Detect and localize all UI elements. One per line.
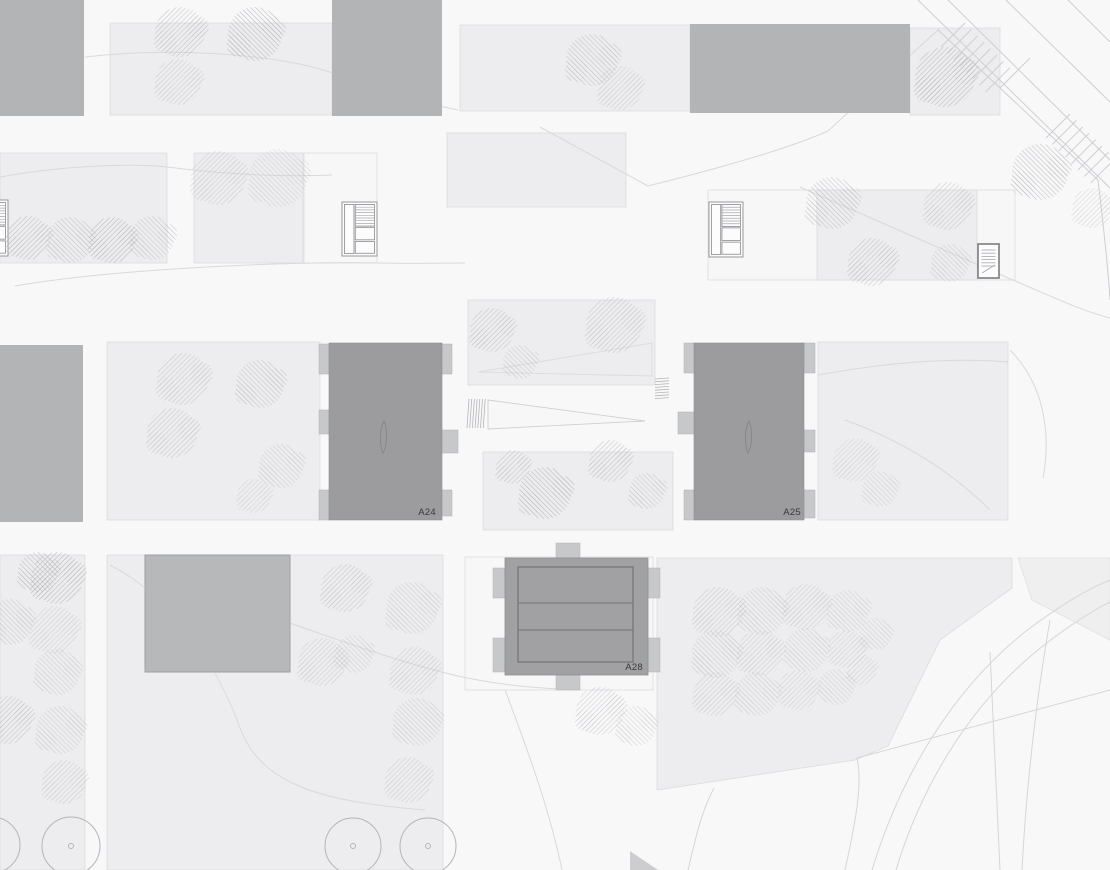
plot-parcel <box>110 23 332 115</box>
tree-canopy <box>552 476 575 499</box>
tree-canopy <box>955 251 972 268</box>
tree-canopy <box>384 779 405 800</box>
stair-outline <box>978 244 999 278</box>
tree-canopy <box>154 31 177 54</box>
balcony-tab <box>648 568 660 598</box>
tree-canopy <box>419 591 442 614</box>
building-block <box>0 345 83 522</box>
tree-canopy <box>847 261 869 283</box>
tree-canopy <box>953 58 980 85</box>
tree-canopy <box>615 725 633 743</box>
balcony-tab <box>684 343 694 373</box>
building-label-a25: A25 <box>783 507 801 518</box>
tree-canopy <box>33 671 54 692</box>
tree-canopy <box>297 661 319 683</box>
tree-canopy <box>853 597 872 616</box>
tree-canopy <box>817 686 833 702</box>
tree-canopy <box>880 624 894 638</box>
building-label-a28: A28 <box>625 662 643 673</box>
tree-canopy <box>861 488 877 504</box>
tree-canopy <box>63 657 84 678</box>
building-square <box>145 555 290 672</box>
building-label-a24: A24 <box>418 507 436 518</box>
tree-canopy <box>923 205 945 227</box>
tree-canopy <box>495 466 510 481</box>
tree-canopy <box>154 81 175 102</box>
tree-canopy <box>524 351 539 366</box>
tree-canopy <box>70 768 90 788</box>
tree-canopy <box>826 610 845 629</box>
building-block <box>0 0 84 116</box>
tree-canopy <box>588 460 607 479</box>
tree-canopy <box>832 459 852 479</box>
tree-canopy <box>420 655 442 677</box>
tree-canopy <box>14 704 36 726</box>
balcony-tab <box>442 344 452 374</box>
balcony-tab <box>804 343 815 373</box>
balcony-tab <box>648 638 660 672</box>
tree-canopy <box>285 159 311 185</box>
tree-canopy <box>46 239 67 260</box>
tree-canopy <box>878 246 900 268</box>
building-roof <box>329 343 442 520</box>
tree-canopy <box>1011 171 1036 196</box>
tree-canopy <box>385 607 408 630</box>
plot-parcel <box>818 342 1008 520</box>
tree-canopy <box>351 572 373 594</box>
balcony-tab <box>319 344 329 374</box>
tree-canopy <box>930 262 947 279</box>
tree-canopy <box>29 629 51 651</box>
tree-canopy <box>66 714 88 736</box>
stair-core-icon <box>709 202 743 257</box>
tree-canopy <box>235 383 257 405</box>
tree-canopy <box>736 652 757 673</box>
balcony-tab <box>442 430 458 453</box>
tree-canopy <box>225 160 249 184</box>
tree-canopy <box>469 329 489 349</box>
building-block <box>690 24 910 113</box>
tree-canopy <box>227 33 251 57</box>
tree-canopy <box>190 177 214 201</box>
tree-canopy <box>652 479 668 495</box>
tree-canopy <box>692 693 712 713</box>
building-roof <box>694 343 804 520</box>
tree-canopy <box>146 432 169 455</box>
balcony-tab <box>493 568 505 598</box>
tree-canopy <box>866 660 880 674</box>
tree-canopy <box>423 706 445 728</box>
tree-canopy <box>914 76 941 103</box>
tree-canopy <box>30 577 53 600</box>
tree-canopy <box>737 610 759 632</box>
tree-canopy <box>334 653 351 670</box>
balcony-tab <box>804 430 815 452</box>
tree-canopy <box>184 67 205 88</box>
tree-canopy <box>287 452 307 472</box>
tree-canopy <box>628 490 644 506</box>
tree-canopy <box>766 638 787 659</box>
balcony-tab <box>678 412 694 434</box>
balcony-tab <box>556 543 580 558</box>
tree-canopy <box>1047 154 1072 179</box>
tree-canopy <box>885 477 901 493</box>
tree-canopy <box>805 202 828 225</box>
tree-canopy <box>178 417 201 440</box>
building-roof <box>505 558 648 675</box>
building-a25: A25 <box>678 343 815 520</box>
balcony-tab <box>319 490 329 520</box>
tree-canopy <box>839 186 862 209</box>
tree-canopy <box>248 177 274 203</box>
tree-canopy <box>266 368 288 390</box>
tree-canopy <box>692 611 715 634</box>
tree-canopy <box>597 87 617 107</box>
tree-canopy <box>861 446 881 466</box>
tree-canopy <box>60 614 82 636</box>
tree-canopy <box>258 485 273 500</box>
tree-canopy <box>41 781 61 801</box>
tree-canopy <box>621 307 646 332</box>
tree-canopy <box>846 669 860 683</box>
plot-parcel <box>447 133 626 207</box>
tree-canopy <box>156 378 179 401</box>
tree-canopy <box>359 642 376 659</box>
tree-canopy <box>777 689 795 707</box>
tree-canopy <box>827 648 844 665</box>
building-block <box>332 0 442 116</box>
tree-canopy <box>782 606 803 627</box>
balcony-tab <box>493 638 505 672</box>
balcony-tab <box>319 410 329 434</box>
balcony-tab <box>804 490 815 518</box>
tree-canopy <box>517 456 532 471</box>
tree-canopy <box>575 710 597 732</box>
tree-canopy <box>320 587 342 609</box>
tree-canopy <box>626 74 646 94</box>
tree-canopy <box>599 43 622 66</box>
tree-canopy <box>186 16 209 39</box>
tree-canopy <box>498 316 518 336</box>
building-a24: A24 <box>319 343 458 520</box>
stair-core-icon <box>978 244 999 278</box>
tree-canopy <box>1071 207 1089 225</box>
site-plan-page: A24A25A28 <box>0 0 1110 870</box>
balcony-tab <box>684 490 694 520</box>
tree-canopy <box>615 447 634 466</box>
stair-core-icon <box>342 202 377 256</box>
balcony-tab <box>556 675 580 690</box>
tree-canopy <box>954 190 976 212</box>
plot-parcel <box>107 342 320 520</box>
tree-canopy <box>158 224 178 244</box>
balcony-tab <box>442 490 452 516</box>
tree-canopy <box>392 721 414 743</box>
tree-canopy <box>35 729 57 751</box>
tree-canopy <box>389 670 411 692</box>
tree-canopy <box>414 765 435 786</box>
tree-canopy <box>585 324 610 349</box>
tree-canopy <box>691 653 713 675</box>
tree-canopy <box>734 693 754 713</box>
tree-canopy <box>262 16 286 40</box>
tree-canopy <box>129 237 149 257</box>
tree-canopy <box>859 633 873 647</box>
tree-canopy <box>5 237 25 257</box>
tree-canopy <box>641 713 659 731</box>
tree-canopy <box>63 561 86 584</box>
tree-canopy <box>236 495 251 510</box>
tree-canopy <box>565 59 588 82</box>
tree-canopy <box>88 239 109 260</box>
tree-canopy <box>190 362 213 385</box>
tree-canopy <box>783 649 803 669</box>
building-a28: A28 <box>493 543 660 690</box>
site-plan-svg: A24A25A28 <box>0 0 1110 870</box>
tree-canopy <box>502 361 517 376</box>
tree-canopy <box>518 492 541 515</box>
